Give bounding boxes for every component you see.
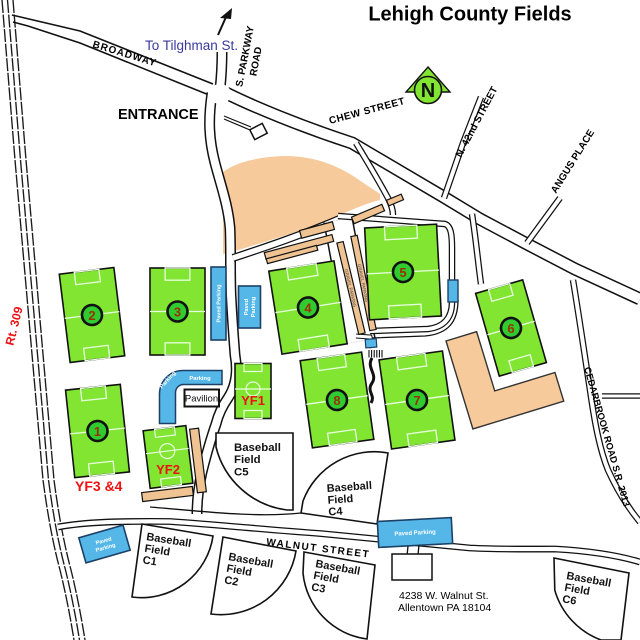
svg-text:7: 7 (413, 393, 420, 408)
svg-text:C4: C4 (328, 506, 344, 519)
svg-text:6: 6 (507, 321, 514, 336)
svg-text:YF2: YF2 (156, 462, 180, 477)
svg-text:1: 1 (94, 424, 101, 439)
svg-text:Lehigh County Fields: Lehigh County Fields (368, 4, 571, 26)
svg-text:4238 W. Walnut St.: 4238 W. Walnut St. (399, 590, 489, 602)
svg-text:C3: C3 (310, 581, 326, 595)
svg-text:Field: Field (234, 454, 261, 466)
svg-text:Paved: Paved (244, 299, 250, 315)
svg-text:Baseball: Baseball (234, 442, 281, 454)
svg-text:C6: C6 (561, 593, 577, 607)
svg-text:To Tilghman St.: To Tilghman St. (145, 38, 238, 53)
svg-text:5: 5 (399, 265, 406, 280)
svg-text:Pavilion: Pavilion (185, 394, 218, 405)
svg-text:Allentown PA 18104: Allentown PA 18104 (398, 602, 491, 614)
svg-text:ENTRANCE: ENTRANCE (118, 107, 199, 123)
svg-text:YF3 &4: YF3 &4 (75, 478, 123, 494)
svg-text:Parking: Parking (189, 376, 211, 382)
svg-text:Field: Field (327, 493, 353, 507)
svg-text:C1: C1 (142, 554, 158, 568)
svg-text:N: N (421, 80, 435, 102)
svg-text:2: 2 (88, 308, 95, 323)
svg-text:C5: C5 (234, 466, 249, 478)
svg-text:8: 8 (333, 393, 340, 408)
svg-text:C2: C2 (223, 574, 239, 588)
svg-text:Paved Parking: Paved Parking (216, 285, 222, 323)
svg-text:YF1: YF1 (241, 393, 265, 408)
svg-text:4: 4 (304, 301, 312, 316)
svg-text:Parking: Parking (251, 297, 257, 317)
svg-text:3: 3 (174, 305, 181, 320)
